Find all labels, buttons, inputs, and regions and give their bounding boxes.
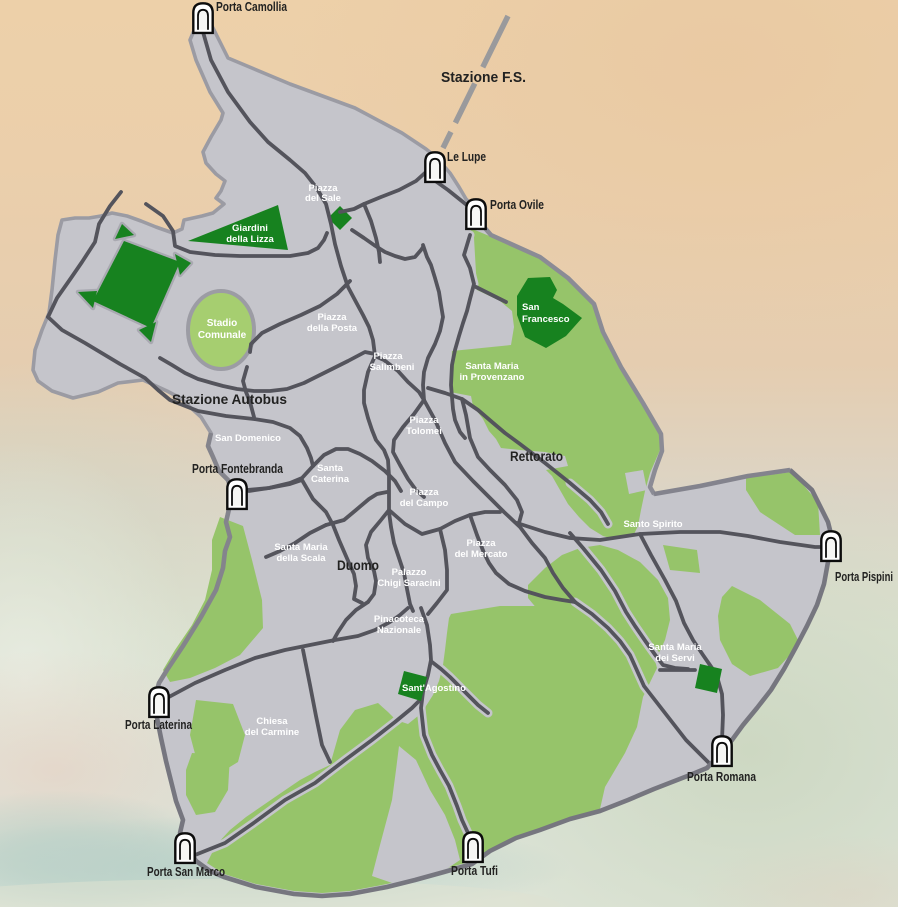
svg-text:Porta Fontebranda: Porta Fontebranda — [192, 462, 284, 476]
svg-text:Comunale: Comunale — [198, 330, 247, 341]
svg-text:in Provenzano: in Provenzano — [460, 372, 525, 383]
svg-text:Sant'Agostino: Sant'Agostino — [402, 683, 466, 694]
svg-text:Giardini: Giardini — [232, 223, 268, 234]
svg-text:Stazione F.S.: Stazione F.S. — [441, 69, 526, 86]
svg-text:della Lizza: della Lizza — [226, 234, 274, 245]
svg-text:Nazionale: Nazionale — [377, 625, 421, 636]
svg-text:del Carmine: del Carmine — [245, 727, 299, 738]
svg-text:Santa Maria: Santa Maria — [465, 361, 519, 372]
svg-text:Salimbeni: Salimbeni — [370, 362, 415, 373]
svg-text:Duomo: Duomo — [337, 558, 379, 573]
svg-text:Santa Maria: Santa Maria — [274, 542, 328, 553]
svg-text:Tolomei: Tolomei — [406, 426, 442, 437]
svg-text:Rettorato: Rettorato — [510, 449, 563, 464]
svg-text:Porta Camollia: Porta Camollia — [216, 0, 288, 14]
svg-text:Santa: Santa — [317, 463, 344, 474]
svg-text:Porta Ovile: Porta Ovile — [490, 198, 544, 212]
svg-text:Stazione Autobus: Stazione Autobus — [172, 391, 287, 407]
svg-text:della Scala: della Scala — [276, 553, 326, 564]
svg-text:del Mercato: del Mercato — [455, 549, 508, 560]
svg-text:Santo Spirito: Santo Spirito — [623, 519, 682, 530]
svg-text:Chiesa: Chiesa — [256, 716, 288, 727]
svg-text:Piazza: Piazza — [317, 312, 347, 323]
svg-text:Santa Maria: Santa Maria — [648, 642, 702, 653]
svg-text:Palazzo: Palazzo — [392, 567, 427, 578]
svg-text:dei Servi: dei Servi — [655, 653, 695, 664]
svg-text:San Domenico: San Domenico — [215, 433, 281, 444]
svg-text:Chigi Saracini: Chigi Saracini — [377, 578, 440, 589]
svg-text:Piazza: Piazza — [409, 415, 439, 426]
svg-text:Stadio: Stadio — [207, 318, 238, 329]
svg-text:San: San — [522, 302, 540, 313]
svg-text:Piazza: Piazza — [373, 351, 403, 362]
svg-text:Porta San Marco: Porta San Marco — [147, 865, 225, 879]
svg-text:del Sale: del Sale — [305, 193, 341, 204]
svg-text:della Posta: della Posta — [307, 323, 358, 334]
svg-text:Porta Pispini: Porta Pispini — [835, 570, 893, 584]
svg-text:Pinacoteca: Pinacoteca — [374, 614, 425, 625]
svg-text:del Campo: del Campo — [400, 498, 449, 509]
svg-text:Porta Romana: Porta Romana — [687, 770, 757, 784]
svg-text:Piazza: Piazza — [409, 487, 439, 498]
svg-text:Caterina: Caterina — [311, 474, 350, 485]
svg-text:Porta Laterina: Porta Laterina — [125, 718, 193, 732]
svg-text:Le Lupe: Le Lupe — [447, 150, 486, 164]
svg-text:Piazza: Piazza — [466, 538, 496, 549]
svg-text:Francesco: Francesco — [522, 314, 570, 325]
svg-text:Porta Tufi: Porta Tufi — [451, 864, 498, 878]
